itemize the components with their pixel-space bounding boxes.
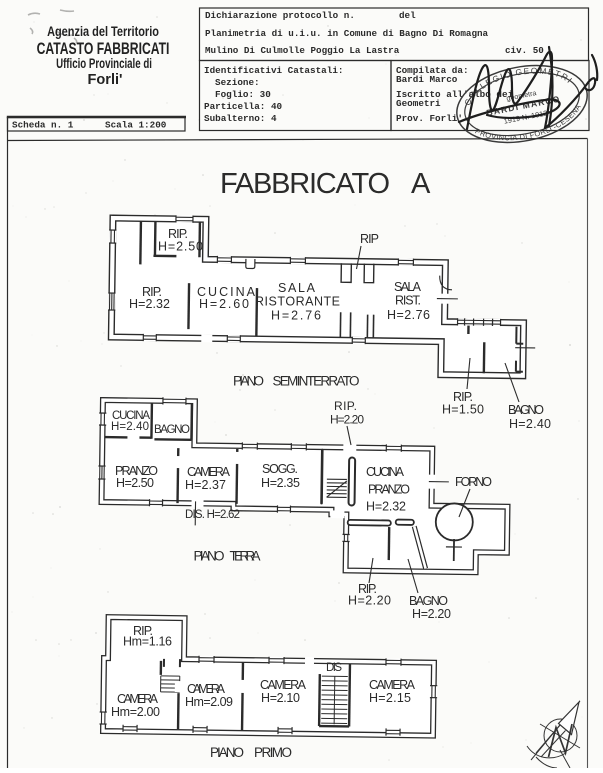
svg-text:Identificativi Catastali:: Identificativi Catastali: bbox=[204, 65, 343, 76]
svg-text:H=2.60: H=2.60 bbox=[199, 297, 249, 311]
svg-text:H=2.20: H=2.20 bbox=[348, 594, 391, 608]
svg-text:civ. 50: civ. 50 bbox=[505, 45, 544, 56]
svg-text:SEMINTERRATO: SEMINTERRATO bbox=[273, 374, 360, 389]
svg-text:CAMERA: CAMERA bbox=[369, 678, 416, 692]
svg-text:H=2.35: H=2.35 bbox=[261, 476, 300, 490]
svg-text:Mulino Di Culmolle Poggio La L: Mulino Di Culmolle Poggio La Lastra bbox=[205, 45, 400, 56]
svg-text:RIST.: RIST. bbox=[395, 294, 421, 308]
svg-text:Agenzia del Territorio: Agenzia del Territorio bbox=[47, 24, 159, 40]
svg-text:H=2.20: H=2.20 bbox=[330, 413, 364, 427]
svg-text:CAMERA: CAMERA bbox=[117, 692, 159, 706]
svg-text:H=2.10: H=2.10 bbox=[261, 691, 300, 705]
svg-text:SOGG.: SOGG. bbox=[262, 462, 298, 476]
svg-text:FORNO: FORNO bbox=[455, 475, 492, 489]
svg-text:H=2.76: H=2.76 bbox=[387, 308, 430, 322]
svg-text:Forli': Forli' bbox=[88, 72, 123, 88]
svg-text:PRANZO: PRANZO bbox=[368, 483, 410, 497]
svg-text:RIP.: RIP. bbox=[334, 399, 357, 413]
svg-text:Ufficio Provinciale di: Ufficio Provinciale di bbox=[56, 55, 152, 71]
svg-text:Particella: 40: Particella: 40 bbox=[204, 101, 283, 112]
svg-text:A: A bbox=[411, 168, 431, 200]
svg-text:BAGNO: BAGNO bbox=[508, 403, 544, 417]
svg-text:BAGNO: BAGNO bbox=[409, 594, 448, 608]
svg-text:H=2.32: H=2.32 bbox=[129, 297, 170, 311]
svg-text:H=2.40: H=2.40 bbox=[111, 421, 149, 433]
svg-text:BAGNO: BAGNO bbox=[154, 424, 190, 436]
svg-text:Hm=2.09: Hm=2.09 bbox=[185, 695, 233, 709]
svg-text:Scheda n. 1: Scheda n. 1 bbox=[12, 120, 74, 131]
svg-text:Prov. Forli': Prov. Forli' bbox=[396, 113, 463, 124]
svg-text:H=2.76: H=2.76 bbox=[271, 309, 321, 323]
svg-text:PIANO: PIANO bbox=[233, 374, 264, 389]
svg-text:H=1.50: H=1.50 bbox=[442, 403, 484, 417]
svg-text:Hm=1.16: Hm=1.16 bbox=[123, 635, 172, 649]
svg-text:RISTORANTE: RISTORANTE bbox=[255, 295, 340, 309]
svg-text:Dichiarazione protocollo n.: Dichiarazione protocollo n. bbox=[205, 10, 355, 21]
svg-text:H=2.40: H=2.40 bbox=[509, 417, 551, 431]
svg-text:SALA: SALA bbox=[394, 280, 422, 294]
svg-text:TERRA: TERRA bbox=[230, 549, 261, 564]
svg-text:H=2.50: H=2.50 bbox=[116, 476, 154, 490]
svg-text:CAMERA: CAMERA bbox=[260, 678, 307, 692]
svg-text:RIP: RIP bbox=[360, 232, 379, 246]
svg-text:Planimetria di u.i.u. in Comun: Planimetria di u.i.u. in Comune di Bagno… bbox=[205, 28, 489, 39]
svg-text:H=2.20: H=2.20 bbox=[412, 607, 451, 621]
svg-text:Hm=2.00: Hm=2.00 bbox=[111, 705, 160, 719]
svg-text:H=2.50: H=2.50 bbox=[158, 240, 203, 254]
svg-text:CAMERA: CAMERA bbox=[187, 682, 226, 696]
svg-text:CAMERA: CAMERA bbox=[187, 465, 231, 479]
svg-text:FABBRICATO: FABBRICATO bbox=[220, 168, 392, 200]
svg-text:DIS. H=2.62: DIS. H=2.62 bbox=[185, 509, 240, 521]
svg-text:del: del bbox=[399, 10, 416, 21]
svg-text:Sezione:: Sezione: bbox=[215, 77, 260, 88]
svg-text:PRIMO: PRIMO bbox=[254, 745, 292, 760]
svg-text:CUCINA: CUCINA bbox=[366, 465, 405, 479]
svg-text:H=2.32: H=2.32 bbox=[366, 500, 406, 514]
svg-text:Foglio: 30: Foglio: 30 bbox=[215, 89, 271, 100]
svg-text:Scala 1:200: Scala 1:200 bbox=[105, 120, 167, 131]
svg-text:PIANO: PIANO bbox=[210, 745, 244, 760]
svg-text:Bardi Marco: Bardi Marco bbox=[396, 74, 458, 85]
svg-text:Subalterno: 4: Subalterno: 4 bbox=[204, 113, 277, 124]
svg-text:DIS: DIS bbox=[326, 662, 342, 674]
svg-text:H=2.37: H=2.37 bbox=[185, 478, 226, 492]
svg-text:H=2.15: H=2.15 bbox=[369, 691, 411, 705]
svg-text:PIANO: PIANO bbox=[194, 549, 225, 564]
svg-text:Geometri: Geometri bbox=[396, 98, 441, 109]
